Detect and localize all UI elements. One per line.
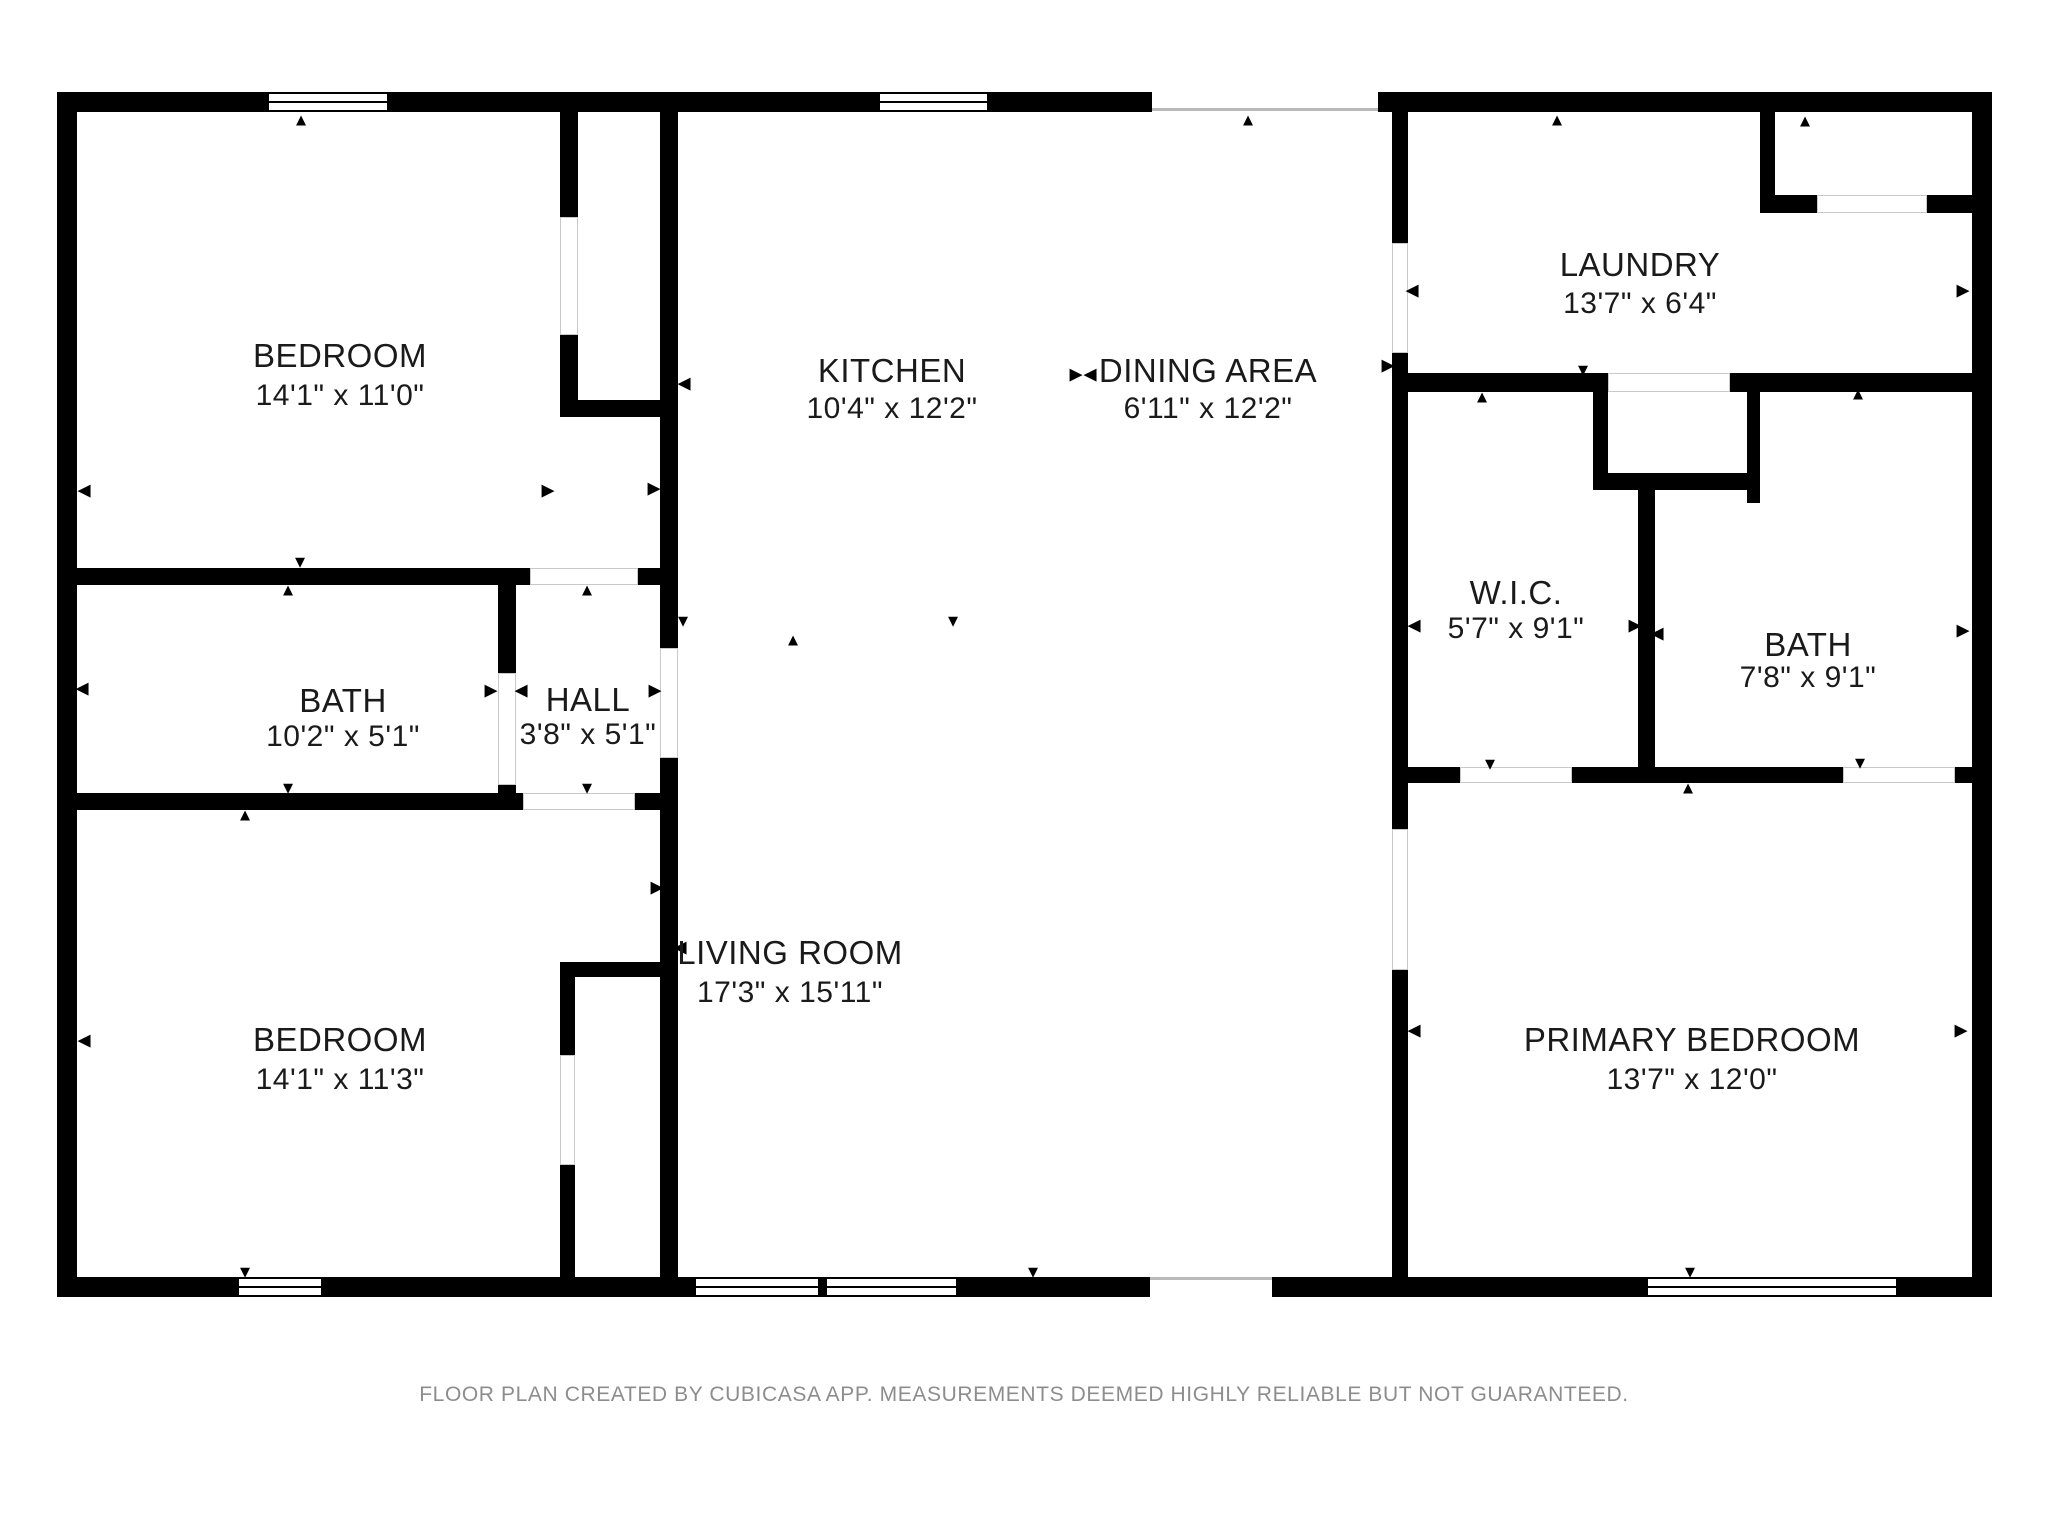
measure-arrow-right-icon: ▶ bbox=[1381, 357, 1394, 374]
wall bbox=[560, 977, 575, 1055]
measure-arrow-down-icon: ▼ bbox=[675, 613, 692, 630]
window-glass-line bbox=[260, 101, 396, 103]
door-opening bbox=[1460, 767, 1572, 783]
measure-arrow-left-icon: ◀ bbox=[514, 682, 527, 699]
measure-arrow-left-icon: ◀ bbox=[75, 680, 88, 697]
measure-arrow-right-icon: ▶ bbox=[484, 682, 497, 699]
measure-arrow-right-icon: ▶ bbox=[1069, 366, 1082, 383]
room-label-bath-left: BATH bbox=[299, 682, 387, 720]
door-opening bbox=[560, 217, 578, 335]
measure-arrow-up-icon: ▲ bbox=[1680, 780, 1697, 797]
room-label-primary-bedroom: PRIMARY BEDROOM bbox=[1524, 1021, 1860, 1059]
wall bbox=[498, 585, 516, 673]
door-opening bbox=[1608, 373, 1730, 392]
measure-arrow-up-icon: ▲ bbox=[280, 582, 297, 599]
window bbox=[869, 92, 998, 112]
room-dims-bedroom-bottom-left: 14'1" x 11'3" bbox=[256, 1063, 425, 1097]
measure-arrow-down-icon: ▼ bbox=[1575, 362, 1592, 379]
measure-arrow-right-icon: ▶ bbox=[1954, 1022, 1967, 1039]
room-dims-bath-left: 10'2" x 5'1" bbox=[266, 720, 420, 754]
measure-arrow-down-icon: ▼ bbox=[280, 780, 297, 797]
measure-arrow-left-icon: ◀ bbox=[1650, 625, 1663, 642]
measure-arrow-down-icon: ▼ bbox=[1025, 1264, 1042, 1281]
measure-arrow-down-icon: ▼ bbox=[945, 613, 962, 630]
measure-arrow-right-icon: ▶ bbox=[648, 682, 661, 699]
wall bbox=[57, 1277, 1150, 1297]
wall bbox=[1927, 195, 1972, 213]
footer-disclaimer: FLOOR PLAN CREATED BY CUBICASA APP. MEAS… bbox=[0, 1383, 2048, 1407]
room-dims-primary-bedroom: 13'7" x 12'0" bbox=[1606, 1063, 1777, 1097]
measure-arrow-up-icon: ▲ bbox=[1797, 113, 1814, 130]
wall bbox=[77, 793, 523, 810]
room-dims-bedroom-top-left: 14'1" x 11'0" bbox=[256, 379, 425, 413]
room-label-kitchen: KITCHEN bbox=[818, 352, 966, 390]
window bbox=[258, 92, 398, 112]
measure-arrow-down-icon: ▼ bbox=[1482, 756, 1499, 773]
measure-arrow-left-icon: ◀ bbox=[77, 482, 90, 499]
wall bbox=[1747, 392, 1760, 503]
measure-arrow-left-icon: ◀ bbox=[1405, 282, 1418, 299]
door-opening bbox=[498, 673, 516, 785]
wall bbox=[1760, 195, 1817, 213]
measure-arrow-right-icon: ▶ bbox=[541, 482, 554, 499]
measure-arrow-down-icon: ▼ bbox=[579, 780, 596, 797]
room-dims-living-room: 17'3" x 15'11" bbox=[697, 976, 883, 1010]
measure-arrow-down-icon: ▼ bbox=[237, 1264, 254, 1281]
window-glass-line bbox=[230, 1286, 330, 1288]
room-label-dining-area: DINING AREA bbox=[1099, 352, 1317, 390]
wall bbox=[1972, 92, 1992, 1297]
wall-opening-line bbox=[1150, 1277, 1272, 1280]
door-opening bbox=[660, 648, 678, 758]
measure-arrow-up-icon: ▲ bbox=[1850, 386, 1867, 403]
measure-arrow-up-icon: ▲ bbox=[1549, 112, 1566, 129]
room-dims-walk-in-closet: 5'7" x 9'1" bbox=[1448, 612, 1585, 646]
wall bbox=[1408, 373, 1593, 392]
window-glass-line bbox=[871, 101, 996, 103]
room-dims-laundry: 13'7" x 6'4" bbox=[1563, 287, 1717, 321]
room-dims-kitchen: 10'4" x 12'2" bbox=[806, 392, 977, 426]
wall bbox=[1392, 353, 1408, 829]
wall bbox=[1408, 767, 1460, 783]
measure-arrow-right-icon: ▶ bbox=[1956, 282, 1969, 299]
window bbox=[1637, 1277, 1907, 1297]
measure-arrow-down-icon: ▼ bbox=[1682, 1264, 1699, 1281]
measure-arrow-down-icon: ▼ bbox=[292, 554, 309, 571]
room-label-bath-right: BATH bbox=[1764, 626, 1852, 664]
wall bbox=[560, 962, 660, 977]
door-opening bbox=[1392, 829, 1408, 970]
measure-arrow-right-icon: ▶ bbox=[650, 879, 663, 896]
window bbox=[685, 1277, 967, 1297]
room-dims-hall: 3'8" x 5'1" bbox=[520, 718, 657, 752]
wall bbox=[560, 335, 578, 400]
measure-arrow-right-icon: ▶ bbox=[647, 480, 660, 497]
room-label-walk-in-closet: W.I.C. bbox=[1470, 574, 1563, 612]
room-label-hall: HALL bbox=[546, 681, 631, 719]
measure-arrow-left-icon: ◀ bbox=[77, 1032, 90, 1049]
measure-arrow-left-icon: ◀ bbox=[677, 375, 690, 392]
wall bbox=[660, 112, 678, 648]
wall bbox=[560, 1165, 575, 1277]
measure-arrow-right-icon: ▶ bbox=[1628, 617, 1641, 634]
room-dims-bath-right: 7'8" x 9'1" bbox=[1740, 661, 1877, 695]
measure-arrow-up-icon: ▲ bbox=[1240, 112, 1257, 129]
room-label-bedroom-bottom-left: BEDROOM bbox=[253, 1021, 427, 1059]
measure-arrow-left-icon: ◀ bbox=[1407, 617, 1420, 634]
measure-arrow-up-icon: ▲ bbox=[237, 807, 254, 824]
measure-arrow-right-icon: ▶ bbox=[1956, 622, 1969, 639]
room-dims-dining-area: 6'11" x 12'2" bbox=[1124, 392, 1293, 426]
wall bbox=[660, 758, 678, 1277]
door-opening bbox=[1817, 195, 1927, 213]
measure-arrow-up-icon: ▲ bbox=[579, 582, 596, 599]
door-opening bbox=[560, 1055, 575, 1165]
wall-opening-line bbox=[1152, 108, 1378, 111]
wall bbox=[560, 400, 660, 417]
measure-arrow-down-icon: ▼ bbox=[1852, 755, 1869, 772]
wall bbox=[638, 568, 660, 585]
floor-plan: FLOOR PLAN CREATED BY CUBICASA APP. MEAS… bbox=[0, 0, 2048, 1536]
wall bbox=[1378, 92, 1992, 112]
measure-arrow-left-icon: ◀ bbox=[1407, 1022, 1420, 1039]
wall bbox=[1593, 473, 1747, 490]
room-label-bedroom-top-left: BEDROOM bbox=[253, 337, 427, 375]
window-mullion bbox=[818, 1279, 827, 1295]
measure-arrow-up-icon: ▲ bbox=[785, 632, 802, 649]
measure-arrow-left-icon: ◀ bbox=[1083, 366, 1096, 383]
wall bbox=[1392, 970, 1408, 1277]
wall bbox=[1593, 373, 1608, 473]
wall bbox=[1392, 112, 1408, 243]
window-glass-line bbox=[1639, 1286, 1905, 1288]
wall bbox=[560, 112, 578, 217]
room-label-living-room: LIVING ROOM bbox=[677, 934, 903, 972]
wall bbox=[57, 92, 77, 1297]
measure-arrow-up-icon: ▲ bbox=[1474, 389, 1491, 406]
room-label-laundry: LAUNDRY bbox=[1560, 246, 1721, 284]
wall bbox=[635, 793, 660, 810]
measure-arrow-up-icon: ▲ bbox=[293, 112, 310, 129]
wall bbox=[1572, 767, 1843, 783]
wall bbox=[1955, 767, 1972, 783]
